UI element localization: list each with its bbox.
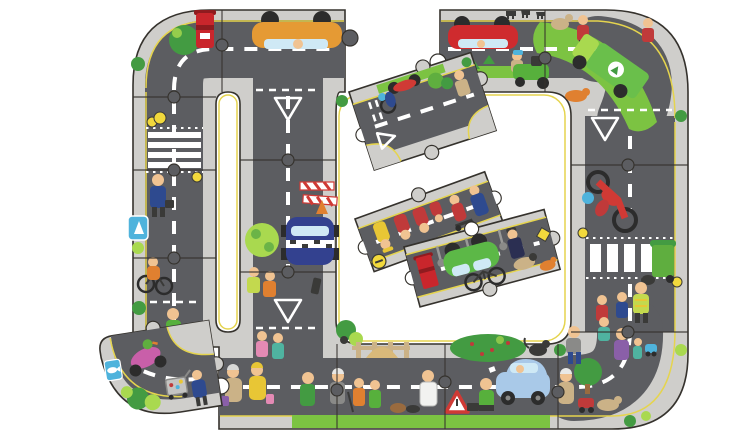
- toolbox: [467, 403, 479, 411]
- child: [634, 338, 642, 346]
- scout: [302, 372, 314, 384]
- cap: [513, 50, 523, 55]
- briefcase: [165, 200, 174, 208]
- belisha-beacon: [578, 228, 588, 238]
- light-tree: [245, 223, 279, 257]
- stroller: [645, 344, 657, 353]
- product-image: [0, 0, 750, 440]
- person-at-corner: [642, 18, 654, 42]
- sail-sign: [128, 216, 148, 240]
- doctor: [422, 370, 434, 382]
- police-car: [281, 217, 339, 265]
- puzzle-illustration: [0, 0, 750, 440]
- driver: [293, 39, 303, 49]
- mechanic: [480, 378, 492, 390]
- belisha-beacon: [192, 172, 202, 182]
- verge-bottom: [292, 415, 550, 428]
- animal: [406, 405, 420, 413]
- animal: [390, 403, 406, 413]
- pram: [578, 398, 594, 408]
- hedge: [450, 334, 526, 362]
- helmet: [582, 192, 594, 204]
- bird: [340, 336, 348, 344]
- detached-piece-corner: [97, 311, 230, 423]
- street-lamp: [154, 112, 166, 124]
- driver: [516, 365, 524, 373]
- tab-gap-left-edge: [342, 30, 358, 46]
- fish-sign: [104, 359, 123, 381]
- windshield: [291, 226, 329, 236]
